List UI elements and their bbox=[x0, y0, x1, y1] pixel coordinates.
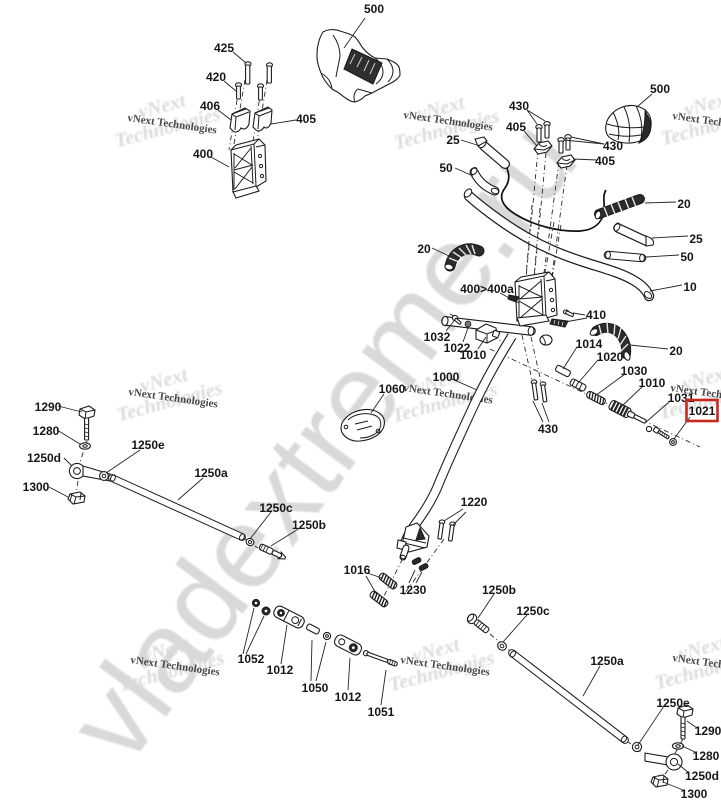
svg-text:500: 500 bbox=[364, 2, 384, 16]
svg-text:1021: 1021 bbox=[689, 404, 716, 418]
svg-text:25: 25 bbox=[446, 133, 460, 147]
svg-text:1250c: 1250c bbox=[259, 501, 293, 515]
svg-text:500: 500 bbox=[650, 82, 670, 96]
svg-text:1250a: 1250a bbox=[590, 654, 624, 668]
svg-text:1016: 1016 bbox=[344, 563, 371, 577]
svg-text:1250c: 1250c bbox=[516, 604, 550, 618]
svg-text:1280: 1280 bbox=[33, 424, 60, 438]
svg-text:50: 50 bbox=[680, 250, 694, 264]
svg-text:10: 10 bbox=[683, 280, 697, 294]
svg-text:1050: 1050 bbox=[302, 681, 329, 695]
svg-text:430: 430 bbox=[509, 99, 529, 113]
svg-text:1052: 1052 bbox=[238, 652, 265, 666]
svg-text:406: 406 bbox=[200, 99, 220, 113]
svg-text:1250e: 1250e bbox=[131, 438, 165, 452]
svg-text:20: 20 bbox=[677, 197, 691, 211]
svg-text:1020: 1020 bbox=[597, 350, 624, 364]
svg-text:400: 400 bbox=[193, 147, 213, 161]
svg-text:1300: 1300 bbox=[681, 787, 708, 800]
svg-text:25: 25 bbox=[689, 232, 703, 246]
svg-text:1250d: 1250d bbox=[685, 769, 719, 783]
svg-text:1300: 1300 bbox=[23, 480, 50, 494]
svg-text:410: 410 bbox=[586, 308, 606, 322]
svg-text:1250b: 1250b bbox=[292, 518, 326, 532]
svg-text:1250e: 1250e bbox=[656, 696, 690, 710]
svg-text:1060: 1060 bbox=[379, 382, 406, 396]
svg-text:1250b: 1250b bbox=[482, 583, 516, 597]
svg-text:405: 405 bbox=[506, 120, 526, 134]
svg-text:1230: 1230 bbox=[400, 583, 427, 597]
svg-text:1010: 1010 bbox=[639, 376, 666, 390]
svg-text:1000: 1000 bbox=[433, 370, 460, 384]
svg-text:400>400a: 400>400a bbox=[460, 282, 514, 296]
svg-text:425: 425 bbox=[214, 41, 234, 55]
svg-text:1014: 1014 bbox=[576, 337, 603, 351]
svg-text:1250d: 1250d bbox=[27, 451, 61, 465]
svg-text:1051: 1051 bbox=[368, 705, 395, 719]
svg-text:1290: 1290 bbox=[35, 400, 62, 414]
svg-text:50: 50 bbox=[439, 161, 453, 175]
svg-text:1012: 1012 bbox=[267, 663, 294, 677]
svg-text:20: 20 bbox=[417, 242, 431, 256]
svg-text:1280: 1280 bbox=[693, 749, 720, 763]
svg-text:20: 20 bbox=[669, 344, 683, 358]
svg-text:1290: 1290 bbox=[695, 724, 721, 738]
svg-text:1250a: 1250a bbox=[194, 466, 228, 480]
svg-text:430: 430 bbox=[603, 139, 623, 153]
svg-text:405: 405 bbox=[296, 112, 316, 126]
svg-text:1031: 1031 bbox=[668, 391, 695, 405]
svg-text:430: 430 bbox=[538, 422, 558, 436]
svg-text:1010: 1010 bbox=[460, 348, 487, 362]
svg-text:1220: 1220 bbox=[461, 495, 488, 509]
svg-text:405: 405 bbox=[595, 154, 615, 168]
svg-text:1012: 1012 bbox=[335, 690, 362, 704]
svg-text:420: 420 bbox=[206, 70, 226, 84]
